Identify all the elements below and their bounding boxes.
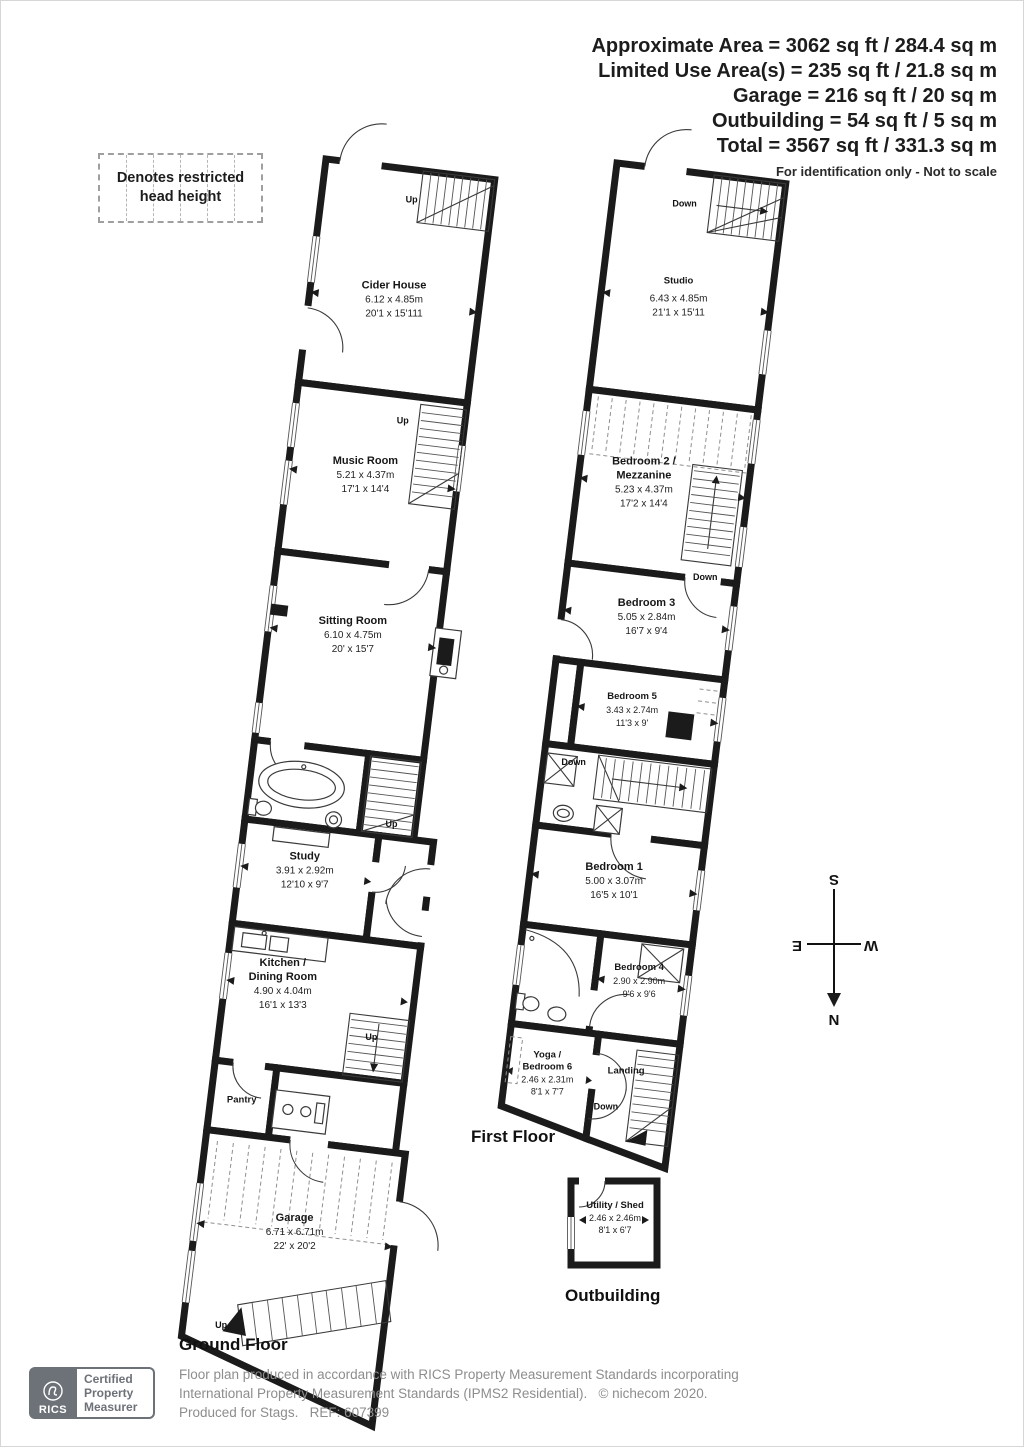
stairs-up-label: Up [406,195,418,205]
stairs-down-label: Down [672,199,697,209]
legend-line-2: head height [140,189,221,205]
landing-name: Landing [608,1066,645,1077]
kitchen-metric: 4.90 x 4.04m [254,986,312,997]
footer-credits: Floor plan produced in accordance with R… [179,1365,739,1422]
stairs-up-label: Up [385,819,397,829]
music-room-name: Music Room [333,455,399,467]
bedroom1-metric: 5.00 x 3.07m [585,876,643,887]
ground-floor-plan: Cider House 6.12 x 4.85m 20'1 x 15'111 M… [168,117,573,1432]
studio-name: Studio [664,276,694,287]
fireplace [430,628,462,679]
studio-imperial: 21'1 x 15'11 [652,308,705,319]
music-room-imperial: 17'1 x 14'4 [342,484,390,495]
utility-shed-name: Utility / Shed [586,1200,644,1211]
first-floor-label: First Floor [471,1127,555,1146]
bedroom3-label: Bedroom 3 5.05 x 2.84m 16'7 x 9'4 [618,597,676,637]
bedroom4-imperial: 9'6 x 9'6 [623,989,656,999]
kitchen-name-1: Kitchen / [260,957,306,969]
restricted-height-legend: Denotes restricted head height [98,153,263,223]
area-line: Garage = 216 sq ft / 20 sq m [591,84,997,109]
bedroom2-imperial: 17'2 x 14'4 [620,499,668,510]
yoga-imperial: 8'1 x 7'7 [531,1086,564,1096]
garage-metric: 6.71 x 6.71m [266,1227,324,1238]
area-line: Approximate Area = 3062 sq ft / 284.4 sq… [591,34,997,59]
stairs-down-label: Down [693,572,718,582]
bedroom2-name-1: Bedroom 2 / [612,456,676,468]
bedroom2-name-2: Mezzanine [616,470,671,482]
utility-shed-metric: 2.46 x 2.46m [589,1213,641,1223]
outbuilding-plan: Utility / Shed 2.46 x 2.46m 8'1 x 6'7 [566,1176,657,1265]
music-room-metric: 5.21 x 4.37m [336,470,394,481]
cupboard [593,805,622,834]
bedroom2-metric: 5.23 x 4.37m [615,485,673,496]
rics-logo-box: RICS [29,1367,77,1419]
badge-word: Certified [84,1372,153,1386]
bedroom5-metric: 3.43 x 2.74m [606,705,658,715]
study-imperial: 12'10 x 9'7 [281,880,329,891]
rics-logo-text: RICS [39,1404,67,1416]
bedroom1-imperial: 16'5 x 10'1 [590,890,638,901]
bedroom3-imperial: 16'7 x 9'4 [625,626,668,637]
sitting-room-imperial: 20' x 15'7 [332,644,375,655]
compass-arrow [827,993,841,1007]
bedroom5-imperial: 11'3 x 9' [616,718,649,728]
yoga-name-1: Yoga / [533,1049,561,1060]
first-floor-plan: Studio 6.43 x 4.85m 21'1 x 15'11 Bedroom… [491,121,796,1169]
legend-line-1: Denotes restricted [117,170,244,186]
compass-south: S [829,871,839,888]
sitting-room-metric: 6.10 x 4.75m [324,630,382,641]
chimney-breast [270,604,288,617]
stairs-up-label: Up [397,415,409,425]
footer-line-1: Floor plan produced in accordance with R… [179,1365,739,1384]
cider-house-name: Cider House [362,279,427,291]
sitting-room-name: Sitting Room [319,615,388,627]
bedroom3-metric: 5.05 x 2.84m [618,612,676,623]
stairs-down-label: Down [561,757,586,767]
badge-word: Measurer [84,1400,153,1414]
stairs-up-label: Up [365,1032,377,1042]
legend-text: Denotes restricted head height [117,169,244,207]
cooker [272,1090,330,1134]
stairs-up-label: Up [215,1320,227,1330]
area-line: Total = 3567 sq ft / 331.3 sq m [591,134,997,159]
area-line: Limited Use Area(s) = 235 sq ft / 21.8 s… [591,59,997,84]
yoga-metric: 2.46 x 2.31m [521,1074,573,1084]
compass: S N E W [792,871,878,1028]
disclaimer-note: For identification only - Not to scale [591,164,997,179]
studio-metric: 6.43 x 4.85m [650,294,708,305]
floorplan-page: Cider House 6.12 x 4.85m 20'1 x 15'111 M… [0,0,1024,1447]
room-sitting-room [255,551,447,760]
bedroom1-label: Bedroom 1 5.00 x 3.07m 16'5 x 10'1 [585,861,643,901]
compass-east: E [792,937,802,954]
cider-house-label: Cider House 6.12 x 4.85m 20'1 x 15'111 [362,279,427,319]
bedroom4-metric: 2.90 x 2.90m [613,976,665,986]
footer-line-2: International Property Measurement Stand… [179,1384,739,1403]
bedroom3-name: Bedroom 3 [618,597,675,609]
outbuilding-label: Outbuilding [565,1286,660,1305]
room-utility-shed [571,1181,657,1265]
garage-name: Garage [276,1212,314,1224]
certified-measurer-box: Certified Property Measurer [77,1367,155,1419]
study-metric: 3.91 x 2.92m [276,866,334,877]
footer-line-3: Produced for Stags. REF: 607399 [179,1403,739,1422]
area-line: Outbuilding = 54 sq ft / 5 sq m [591,109,997,134]
garage-imperial: 22' x 20'2 [274,1241,317,1252]
pantry-name: Pantry [227,1095,257,1106]
landing-label: Landing [608,1066,645,1077]
chimney-block [665,711,694,740]
music-room-label: Music Room 5.21 x 4.37m 17'1 x 14'4 [333,455,399,495]
rics-lion-icon [42,1380,64,1404]
cider-house-imperial: 20'1 x 15'111 [365,308,423,319]
utility-shed-imperial: 8'1 x 6'7 [599,1225,632,1235]
study-name: Study [289,851,320,863]
bedroom5-name: Bedroom 5 [607,691,657,702]
bedroom1-name: Bedroom 1 [585,861,642,873]
kitchen-name-2: Dining Room [249,971,318,983]
rics-badge: RICS Certified Property Measurer [29,1367,155,1419]
bedroom4-name: Bedroom 4 [614,962,664,973]
pantry-label: Pantry [227,1095,257,1106]
area-summary: Approximate Area = 3062 sq ft / 284.4 sq… [591,34,997,179]
ground-floor-label: Ground Floor [179,1335,288,1354]
cider-house-metric: 6.12 x 4.85m [365,294,423,305]
compass-west: W [863,937,878,954]
compass-north: N [829,1011,840,1028]
yoga-name-2: Bedroom 6 [522,1061,572,1072]
stairs-down-label: Down [594,1102,619,1112]
badge-word: Property [84,1386,153,1400]
kitchen-imperial: 16'1 x 13'3 [259,1000,307,1011]
